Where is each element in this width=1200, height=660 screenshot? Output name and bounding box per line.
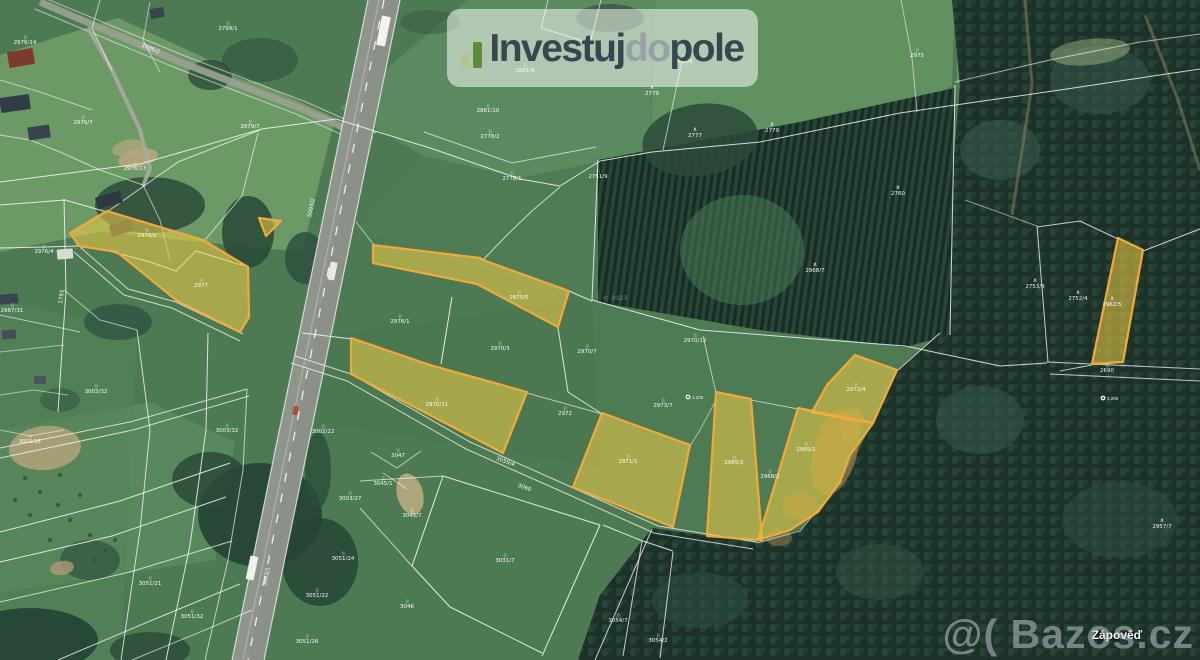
svg-text:∣∣: ∣∣	[656, 633, 660, 638]
svg-text:∣∣: ∣∣	[94, 384, 98, 389]
svg-text:2972/4: 2972/4	[846, 387, 866, 393]
svg-text:3051/22: 3051/22	[306, 593, 329, 599]
svg-text:∣∣: ∣∣	[503, 553, 507, 558]
svg-text:2778/1: 2778/1	[502, 176, 521, 182]
svg-text:2970/2: 2970/2	[137, 233, 156, 239]
svg-text:∣∣: ∣∣	[145, 228, 149, 233]
svg-text:∣∣: ∣∣	[486, 103, 490, 108]
svg-text:∣∣: ∣∣	[305, 634, 309, 639]
svg-text:2968/7: 2968/7	[805, 268, 825, 274]
svg-text:3002/22: 3002/22	[312, 429, 335, 435]
svg-text:∣∣: ∣∣	[28, 434, 32, 439]
svg-text:2975: 2975	[910, 53, 924, 59]
svg-text:∣∣: ∣∣	[42, 244, 46, 249]
svg-text:∣∣: ∣∣	[616, 613, 620, 618]
svg-text:∣∣: ∣∣	[199, 278, 203, 283]
svg-text:2962/5: 2962/5	[1102, 302, 1122, 308]
brand-logo: Investujdopole	[447, 9, 758, 87]
svg-text:3046: 3046	[400, 604, 414, 610]
svg-text:2970/11: 2970/11	[426, 402, 449, 408]
svg-text:3051/26: 3051/26	[296, 639, 319, 645]
svg-text:2976/1: 2976/1	[390, 319, 409, 325]
svg-text:3003/32: 3003/32	[216, 428, 239, 434]
svg-text:2968/2: 2968/2	[760, 474, 779, 480]
svg-text:∣∣: ∣∣	[248, 119, 252, 124]
svg-text:∣∣: ∣∣	[510, 171, 514, 176]
svg-text:∣∣: ∣∣	[915, 48, 919, 53]
logo-growth-bars-icon	[461, 42, 482, 68]
svg-text:3051/24: 3051/24	[332, 556, 355, 562]
svg-text:2690: 2690	[1100, 368, 1114, 374]
logo-text-do: do	[625, 27, 670, 70]
svg-text:3031/7: 3031/7	[495, 558, 515, 564]
svg-text:∣∣: ∣∣	[225, 423, 229, 428]
svg-text:∣∣: ∣∣	[81, 115, 85, 120]
svg-text:2970/5: 2970/5	[509, 295, 529, 301]
svg-text:∣∣: ∣∣	[226, 21, 230, 26]
svg-text:2973/7: 2973/7	[653, 403, 673, 409]
svg-text:3047: 3047	[391, 453, 405, 459]
svg-text:∣∣: ∣∣	[190, 609, 194, 614]
svg-text:2972: 2972	[558, 411, 572, 417]
svg-text:2987/31: 2987/31	[1, 308, 24, 314]
svg-text:2976/13: 2976/13	[124, 166, 147, 172]
svg-text:∣∣: ∣∣	[488, 129, 492, 134]
cadastral-satellite-map: ∣∣2977∣∣2970/5∣∣2970/11∣∣2971/1∣∣2969/2∣…	[0, 0, 1200, 660]
svg-text:∣∣: ∣∣	[693, 333, 697, 338]
svg-text:3051/21: 3051/21	[139, 581, 162, 587]
svg-text:∣∣: ∣∣	[585, 344, 589, 349]
svg-text:3051/32: 3051/32	[181, 614, 204, 620]
svg-text:1.206: 1.206	[692, 395, 704, 400]
svg-text:3054/2: 3054/2	[648, 638, 667, 644]
svg-text:2752/4: 2752/4	[1068, 296, 1088, 302]
svg-text:2976/14: 2976/14	[14, 40, 37, 46]
svg-text:∣∣: ∣∣	[596, 169, 600, 174]
svg-text:∣∣: ∣∣	[23, 35, 27, 40]
svg-text:2979/7: 2979/7	[240, 124, 260, 130]
svg-text:∣∣: ∣∣	[854, 382, 858, 387]
svg-text:∣∣: ∣∣	[148, 576, 152, 581]
svg-text:3002/31: 3002/31	[19, 439, 42, 445]
svg-text:2777: 2777	[688, 133, 702, 139]
svg-text:2753/8: 2753/8	[1025, 284, 1045, 290]
svg-text:∣∣: ∣∣	[498, 341, 502, 346]
svg-text:∣∣: ∣∣	[341, 551, 345, 556]
svg-text:2760: 2760	[891, 191, 905, 197]
svg-text:∣∣: ∣∣	[321, 424, 325, 429]
svg-text:3054/7: 3054/7	[608, 618, 628, 624]
svg-text:∣∣: ∣∣	[381, 476, 385, 481]
svg-text:∣∣: ∣∣	[768, 469, 772, 474]
svg-text:2977: 2977	[194, 283, 208, 289]
svg-text:∣∣: ∣∣	[563, 406, 567, 411]
svg-text:∣∣: ∣∣	[315, 588, 319, 593]
svg-text:3002/32: 3002/32	[85, 389, 108, 395]
svg-text:2751/9: 2751/9	[588, 174, 608, 180]
svg-text:∣∣: ∣∣	[804, 442, 808, 447]
svg-text:3003/27: 3003/27	[339, 496, 362, 502]
svg-text:∣∣: ∣∣	[517, 290, 521, 295]
svg-text:2969/2: 2969/2	[724, 460, 743, 466]
svg-text:2779: 2779	[765, 128, 779, 134]
map-place-label: Zápověď	[1062, 628, 1172, 642]
svg-text:2957/7: 2957/7	[1152, 524, 1172, 530]
svg-text:∣∣: ∣∣	[396, 448, 400, 453]
svg-text:2861/10: 2861/10	[477, 108, 500, 114]
svg-text:∣∣: ∣∣	[661, 398, 665, 403]
svg-text:2778/2: 2778/2	[480, 134, 499, 140]
svg-text:∣∣: ∣∣	[405, 599, 409, 604]
svg-text:∣∣: ∣∣	[398, 314, 402, 319]
logo-text-pole: pole	[669, 27, 743, 70]
svg-text:∣∣: ∣∣	[1105, 363, 1109, 368]
svg-text:∣∣: ∣∣	[410, 508, 414, 513]
svg-text:3045/7: 3045/7	[402, 513, 422, 519]
svg-text:2970/3: 2970/3	[490, 346, 510, 352]
svg-text:1.205: 1.205	[1107, 396, 1119, 401]
svg-text:∣∣: ∣∣	[626, 454, 630, 459]
svg-text:∣∣: ∣∣	[348, 491, 352, 496]
logo-text-investuj: Investuj	[489, 27, 624, 70]
svg-text:2976/7: 2976/7	[73, 120, 93, 126]
svg-text:2970/7: 2970/7	[577, 349, 597, 355]
svg-text:∣∣: ∣∣	[133, 161, 137, 166]
listing-photo-satellite-map[interactable]: ∣∣2977∣∣2970/5∣∣2970/11∣∣2971/1∣∣2969/2∣…	[0, 0, 1200, 660]
svg-text:2971/1: 2971/1	[618, 459, 637, 465]
svg-text:2970/12: 2970/12	[684, 338, 707, 344]
svg-text:2969/1: 2969/1	[796, 447, 815, 453]
svg-text:2779: 2779	[645, 91, 659, 97]
svg-text:2799/1: 2799/1	[218, 26, 237, 32]
svg-text:∣∣: ∣∣	[10, 303, 14, 308]
svg-text:∣∣: ∣∣	[435, 397, 439, 402]
svg-text:3045/1: 3045/1	[373, 481, 392, 487]
svg-text:∣∣: ∣∣	[732, 455, 736, 460]
svg-text:2976/4: 2976/4	[34, 249, 54, 255]
logo-wordmark: Investujdopole	[489, 29, 743, 68]
svg-text:© 2023: © 2023	[602, 294, 627, 302]
